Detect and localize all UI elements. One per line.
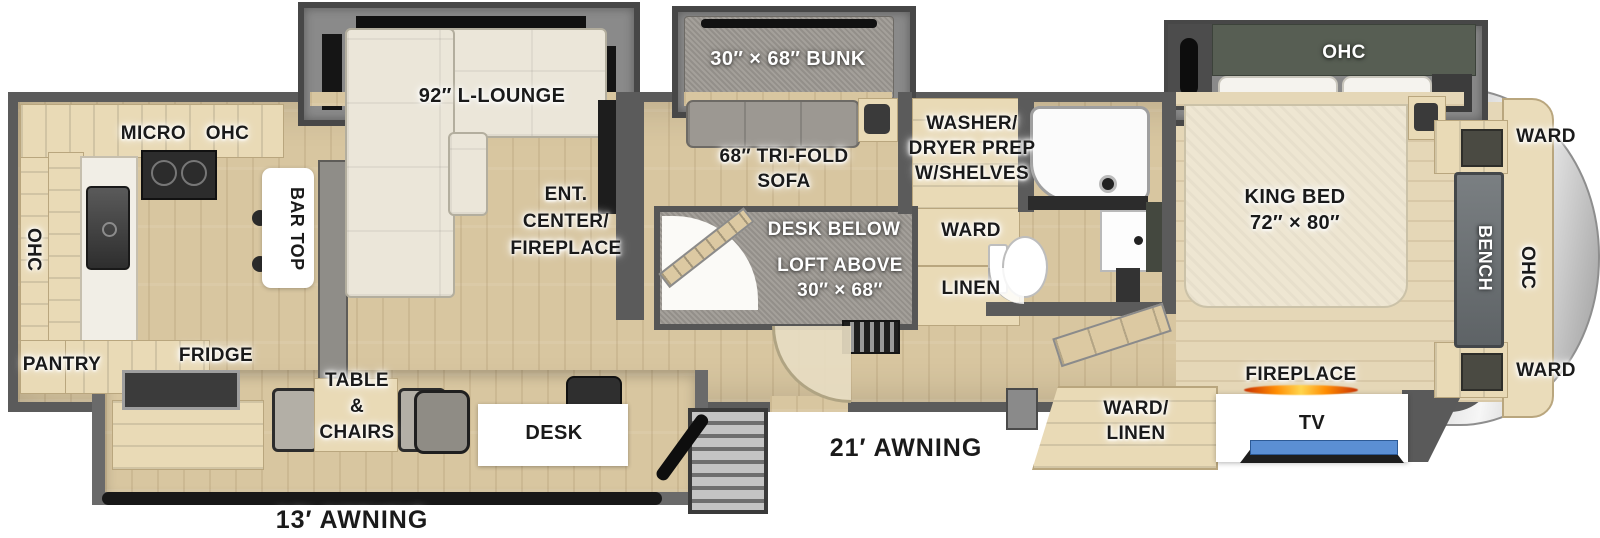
label-bunk: 30″ × 68″ BUNK [676,46,900,72]
label-ent-center-line2: CENTER/ [476,209,656,236]
label-fireplace: FIREPLACE [1218,362,1384,387]
label-pantry: PANTRY [4,352,120,377]
kitchen-sink [86,186,130,270]
label-fridge: FRIDGE [156,343,276,368]
floorplan-canvas: MICRO OHC OHC PANTRY FRIDGE BAR TOP 92″ … [0,0,1600,538]
burner-left-icon [151,160,177,186]
label-ohc-front: OHC [1506,226,1540,310]
label-awning-21: 21′ AWNING [806,432,1006,465]
label-table-line1: TABLE [312,368,402,394]
label-ohc-bed-slide: OHC [1312,40,1376,65]
label-ward-front-top: WARD [1494,124,1598,149]
bath-tall-cabinet [1146,202,1162,272]
label-tri-fold-sofa: 68″ TRI-FOLD SOFA [684,144,884,194]
faucet-icon [1134,236,1143,245]
tv-screen [1250,440,1398,455]
label-tri-fold-line2: SOFA [684,169,884,194]
bar-counter [318,160,348,394]
label-ward-hall: WARD [926,218,1016,243]
label-ward-linen-line2: LINEN [1056,421,1216,446]
king-slide-left-slot [1180,38,1198,96]
vanity-base [1116,268,1140,304]
label-tv: TV [1280,410,1344,436]
label-tri-fold-line1: 68″ TRI-FOLD [684,144,884,169]
label-linen-hall: LINEN [922,276,1020,301]
label-ohc-rear: OHC [14,212,46,288]
label-king-bed-line1: KING BED [1214,184,1376,210]
tri-fold-sofa [686,100,860,148]
label-ent-center: ENT. CENTER/ FIREPLACE [476,182,656,263]
kitchen-cabinet-column [48,152,84,346]
label-ent-center-line3: FIREPLACE [476,236,656,263]
label-washer-line1: WASHER/ [893,111,1051,136]
label-ent-center-line1: ENT. [476,182,656,209]
stove [141,150,217,200]
label-desk-below: DESK BELOW [746,217,922,242]
label-king-bed-line2: 72″ × 80″ [1214,210,1376,236]
bunk-window [701,19,877,28]
sink-drain-icon [102,222,117,237]
label-washer-line3: W/SHELVES [893,161,1051,186]
label-awning-13: 13′ AWNING [234,504,470,537]
label-desk: DESK [498,420,610,446]
desk-chair-1 [414,390,470,454]
console-end-wall [1402,390,1464,462]
label-king-bed: KING BED 72″ × 80″ [1214,184,1376,237]
label-loft-line1: LOFT ABOVE [752,253,928,278]
label-ward-front-bottom: WARD [1494,358,1598,383]
label-washer-dryer: WASHER/ DRYER PREP W/SHELVES [893,111,1051,186]
label-table-line2: & [312,394,402,420]
shower-drain-icon [1099,175,1117,193]
shower-curb [1028,196,1148,210]
label-l-lounge: 92″ L-LOUNGE [372,83,612,109]
bunk-end-table [858,98,898,142]
label-bar-top: BAR TOP [268,177,308,281]
label-ward-linen-line1: WARD/ [1056,396,1216,421]
end-table-top [864,104,890,134]
bath-vanity-sink [1100,210,1152,272]
fridge-island [112,400,264,470]
label-washer-line2: DRYER PREP [893,136,1051,161]
fridge-top [122,370,240,410]
l-lounge-sofa-leg [345,28,455,298]
label-table-line3: CHAIRS [312,420,402,446]
bedroom-wall [1162,92,1176,314]
label-bench: BENCH [1458,202,1496,314]
label-loft-line2: 30″ × 68″ [752,278,928,303]
ward-linen-step [1006,388,1038,430]
label-loft-above: LOFT ABOVE 30″ × 68″ [752,253,928,303]
label-micro-ohc: MICRO OHC [90,121,280,146]
label-table-chairs: TABLE & CHAIRS [312,368,402,447]
label-ward-linen-exterior: WARD/ LINEN [1056,396,1216,446]
burner-right-icon [181,160,207,186]
